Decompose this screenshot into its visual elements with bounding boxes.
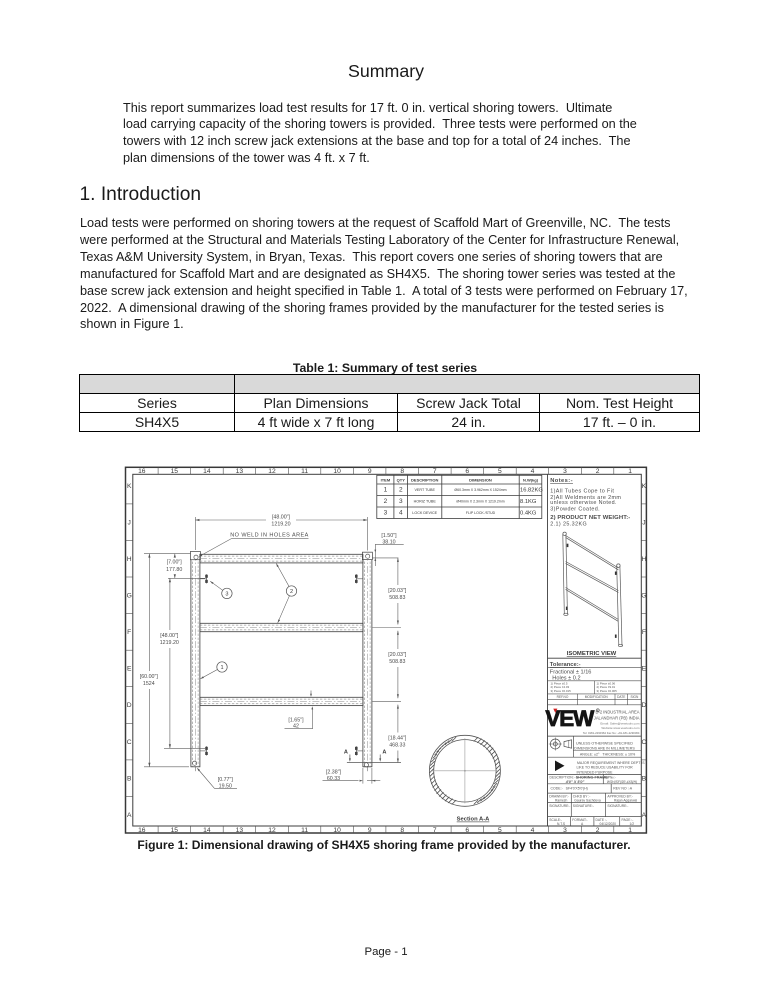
svg-text:K: K [642, 483, 647, 490]
svg-text:1/2: 1/2 [630, 822, 635, 826]
svg-text:DESCRIPTION: DESCRIPTION [411, 478, 438, 483]
svg-text:5: 5 [498, 827, 502, 834]
svg-text:N.T.S: N.T.S [557, 822, 566, 826]
svg-text:8: 8 [400, 827, 404, 834]
svg-text:1: 1 [220, 665, 223, 671]
svg-text:J: J [128, 519, 131, 526]
svg-text:3: 3 [563, 827, 567, 834]
svg-text:DATE :-: DATE :- [596, 818, 607, 822]
svg-text:[18.44"]: [18.44"] [388, 735, 407, 741]
svg-text:LOCK DEVICE: LOCK DEVICE [412, 511, 437, 515]
svg-text:2: 2 [384, 498, 388, 505]
svg-text:SIGNATURE:-: SIGNATURE:- [573, 804, 594, 808]
svg-text:CP№:-: CP№:- [605, 775, 615, 779]
svg-text:4: 4 [531, 468, 535, 475]
svg-text:[60.00"]: [60.00"] [140, 674, 159, 680]
svg-text:11: 11 [301, 827, 308, 834]
svg-text:G: G [641, 593, 646, 600]
svg-text:WSH(SF)SR-4X5(H): WSH(SF)SR-4X5(H) [607, 780, 637, 784]
svg-text:SCALE:-: SCALE:- [549, 818, 562, 822]
svg-text:[7.00"]: [7.00"] [167, 560, 183, 566]
svg-text:D: D [641, 702, 646, 709]
svg-text:14: 14 [203, 468, 211, 475]
svg-text:2.1) 25.32KG: 2.1) 25.32KG [550, 521, 587, 527]
svg-text:7: 7 [433, 827, 437, 834]
svg-text:3) Piece ±0.005: 3) Piece ±0.005 [597, 689, 618, 693]
svg-text:NO WELD IN HOLES AREA: NO WELD IN HOLES AREA [230, 532, 309, 538]
svg-text:Ø40mm X 2.3mm X 1219.2mm: Ø40mm X 2.3mm X 1219.2mm [456, 500, 504, 504]
svg-text:DIMENSION: DIMENSION [469, 478, 492, 483]
svg-text:2: 2 [596, 827, 600, 834]
svg-text:3: 3 [399, 498, 403, 505]
svg-text:3: 3 [384, 510, 388, 517]
svg-text:15: 15 [171, 827, 179, 834]
svg-text:2: 2 [596, 468, 600, 475]
svg-text:[2.38"]: [2.38"] [326, 770, 342, 776]
svg-text:2: 2 [290, 589, 293, 595]
svg-text:Ramesh: Ramesh [555, 799, 567, 803]
svg-text:Tolerance:-: Tolerance:- [550, 662, 581, 668]
svg-text:15: 15 [171, 468, 179, 475]
svg-text:E: E [642, 666, 647, 673]
svg-text:3: 3 [225, 592, 228, 598]
svg-text:G: G [127, 593, 132, 600]
svg-text:C: C [641, 739, 646, 746]
svg-text:VEW: VEW [545, 706, 595, 731]
svg-text:H: H [127, 556, 132, 563]
svg-text:SIGN: SIGN [631, 695, 639, 699]
svg-text:[1.50"]: [1.50"] [381, 533, 397, 539]
svg-text:UNLESS OTHERWISE SPECIFIED: UNLESS OTHERWISE SPECIFIED [576, 741, 633, 745]
svg-text:H: H [641, 556, 646, 563]
svg-text:60.33: 60.33 [327, 776, 340, 782]
svg-text:468.33: 468.33 [389, 743, 405, 749]
svg-text:508.83: 508.83 [389, 659, 405, 665]
svg-text:DIMENSIONS ARE IN MILLIMETERS: DIMENSIONS ARE IN MILLIMETERS [574, 746, 635, 750]
svg-text:Ø60.3mm X 3.962mm X 1524mm: Ø60.3mm X 3.962mm X 1524mm [454, 488, 506, 492]
svg-text:2: 2 [399, 487, 403, 494]
svg-text:1: 1 [384, 487, 388, 494]
svg-text:MODIFICATION: MODIFICATION [585, 695, 609, 699]
svg-text:E: E [127, 666, 132, 673]
svg-text:MAJOR REQUIREMENT WHERE DEPT I: MAJOR REQUIREMENT WHERE DEPT IS [577, 761, 645, 765]
svg-text:4: 4 [399, 510, 403, 517]
svg-text:VERT TUBE: VERT TUBE [414, 488, 435, 492]
svg-text:2) PRODUCT NET WEIGHT:-: 2) PRODUCT NET WEIGHT:- [550, 515, 630, 521]
svg-text:13: 13 [236, 468, 244, 475]
svg-text:42: 42 [293, 724, 299, 730]
svg-text:JALANDHAR (PB) INDIA: JALANDHAR (PB) INDIA [594, 715, 640, 720]
svg-text:A: A [344, 750, 348, 756]
svg-text:Rajan Aggarwal: Rajan Aggarwal [614, 799, 637, 803]
svg-text:FLIP LOCK /STUD: FLIP LOCK /STUD [466, 511, 496, 515]
svg-text:B: B [127, 775, 132, 782]
svg-text:FORMAT:-: FORMAT:- [572, 818, 587, 822]
svg-text:A: A [642, 812, 647, 819]
svg-text:D: D [127, 702, 132, 709]
svg-text:ISOMETRIC VIEW: ISOMETRIC VIEW [567, 651, 617, 657]
svg-text:1: 1 [628, 468, 632, 475]
svg-text:F: F [127, 629, 131, 636]
svg-text:5: 5 [498, 468, 502, 475]
svg-text:J: J [642, 519, 645, 526]
svg-text:3)Powder Coated.: 3)Powder Coated. [550, 506, 600, 512]
svg-text:1219.20: 1219.20 [271, 522, 290, 528]
svg-text:unless otherwise Noted.: unless otherwise Noted. [550, 500, 617, 506]
svg-text:10: 10 [333, 468, 341, 475]
svg-text:3) Piece ±0.015: 3) Piece ±0.015 [551, 689, 572, 693]
svg-text:Notes:-: Notes:- [550, 478, 573, 484]
svg-text:8: 8 [400, 468, 404, 475]
svg-text:DATE: DATE [617, 695, 625, 699]
svg-text:13: 13 [236, 827, 244, 834]
svg-text:INTENDED PURPOSE: INTENDED PURPOSE [577, 770, 614, 774]
svg-text:[20.03"]: [20.03"] [388, 652, 407, 658]
svg-text:LIKE TO REDUCE USABILITY FOR: LIKE TO REDUCE USABILITY FOR [577, 766, 634, 770]
svg-text:REF.NO: REF.NO [557, 695, 569, 699]
svg-text:DESCRIPTION:- SHORING FRAME: DESCRIPTION:- SHORING FRAME [550, 775, 609, 779]
svg-text:1219.20: 1219.20 [160, 640, 179, 646]
svg-text:CODE:- SF4'0'X5'0'(H): CODE:- SF4'0'X5'0'(H) [551, 787, 588, 791]
svg-text:11: 11 [301, 468, 308, 475]
svg-text:SIGNATURE:-: SIGNATURE:- [549, 804, 570, 808]
svg-text:N.W(kg): N.W(kg) [523, 478, 539, 483]
svg-text:1)All Tubes Cope to Fit: 1)All Tubes Cope to Fit [550, 489, 614, 495]
svg-text:A: A [127, 812, 132, 819]
svg-text:177.80: 177.80 [166, 567, 182, 573]
svg-text:[0.77"]: [0.77"] [218, 777, 234, 783]
svg-text:ANGLE: ±2° THICKNESS: ± 10%: ANGLE: ±2° THICKNESS: ± 10% [580, 753, 636, 757]
svg-text:16.82KG: 16.82KG [520, 488, 543, 494]
svg-text:Gaurav Sachdeva: Gaurav Sachdeva [574, 799, 601, 803]
svg-text:14: 14 [203, 827, 211, 834]
svg-text:Section A-A: Section A-A [457, 817, 490, 823]
svg-text:K: K [127, 483, 132, 490]
svg-text:SIGNATURE:-: SIGNATURE:- [607, 804, 628, 808]
svg-text:1524: 1524 [143, 681, 155, 687]
svg-text:REV NO :-A: REV NO :-A [613, 787, 633, 791]
svg-text:Tel: 0181-2290364 Fax No: +91-: Tel: 0181-2290364 Fax No: +91-181-229036… [583, 731, 640, 735]
svg-text:A: A [382, 750, 386, 756]
svg-text:0.4KG: 0.4KG [520, 511, 537, 517]
svg-text:PAGE :-: PAGE :- [622, 818, 634, 822]
svg-text:9: 9 [368, 468, 372, 475]
svg-text:8.1KG: 8.1KG [520, 499, 537, 505]
svg-text:F: F [642, 629, 646, 636]
svg-text:B: B [642, 775, 647, 782]
svg-text:16: 16 [138, 827, 146, 834]
svg-text:16: 16 [138, 468, 146, 475]
svg-text:508.83: 508.83 [389, 595, 405, 601]
svg-text:12: 12 [268, 468, 276, 475]
svg-text:7: 7 [433, 468, 437, 475]
svg-text:04/12/2020: 04/12/2020 [600, 822, 617, 826]
svg-text:[20.03"]: [20.03"] [388, 588, 407, 594]
svg-text:[1.65"]: [1.65"] [288, 717, 304, 723]
svg-text:3: 3 [563, 468, 567, 475]
svg-text:12: 12 [268, 827, 276, 834]
svg-text:6: 6 [465, 827, 469, 834]
svg-text:9: 9 [368, 827, 372, 834]
svg-text:ITEM: ITEM [381, 478, 391, 483]
svg-text:4'0" X 5'0": 4'0" X 5'0" [565, 780, 585, 784]
svg-text:[48.00"]: [48.00"] [160, 633, 179, 639]
svg-text:Website:www.vewtools.com: Website:www.vewtools.com [601, 726, 640, 730]
svg-text:4: 4 [531, 827, 535, 834]
svg-text:19.50: 19.50 [219, 783, 232, 789]
svg-text:10: 10 [333, 827, 341, 834]
svg-text:6: 6 [465, 468, 469, 475]
svg-text:C: C [127, 739, 132, 746]
svg-text:HORIZ TUBE: HORIZ TUBE [414, 500, 437, 504]
svg-text:[48.00"]: [48.00"] [272, 514, 291, 520]
svg-text:D-2 INDUSTRIAL AREA: D-2 INDUSTRIAL AREA [596, 710, 640, 715]
svg-text:1: 1 [628, 827, 632, 834]
svg-text:QTY: QTY [397, 478, 406, 483]
